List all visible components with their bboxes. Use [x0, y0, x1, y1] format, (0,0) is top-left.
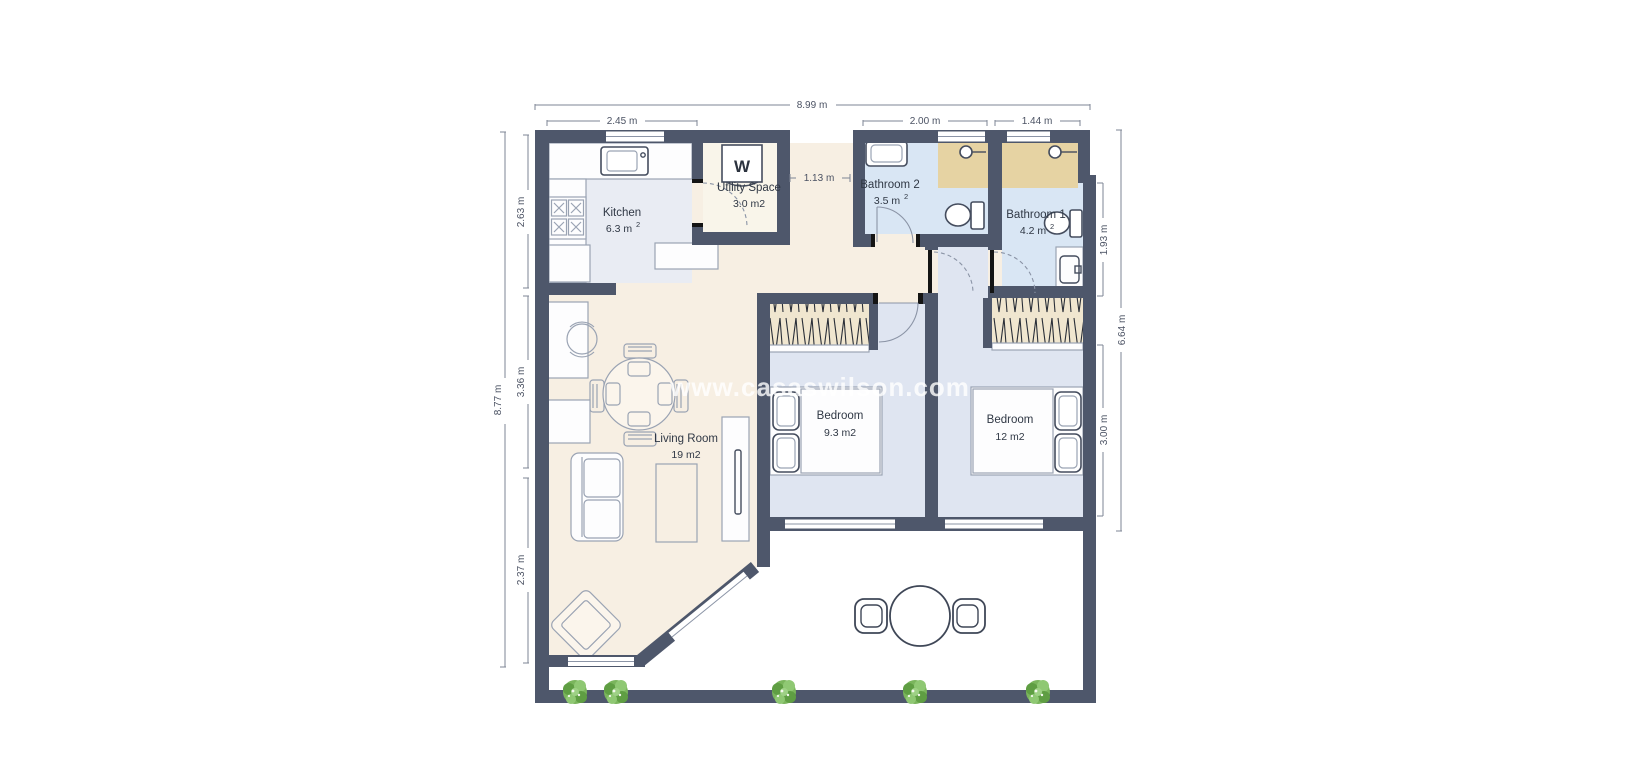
window-bedroom2 [945, 520, 1043, 529]
svg-text:2: 2 [1050, 222, 1054, 231]
window-bathroom2 [938, 132, 985, 142]
dimension-kitchen-width: 2.45 m [547, 116, 697, 127]
svg-text:2.37 m: 2.37 m [516, 555, 527, 586]
svg-text:1.13 m: 1.13 m [804, 173, 835, 184]
floor-plan: W [0, 0, 1638, 773]
washer-letter: W [734, 157, 751, 176]
svg-text:2.63 m: 2.63 m [516, 197, 527, 228]
dimension-living-bottom-height: 2.37 m [516, 478, 529, 663]
dimension-bathroom1-height: 1.93 m [1097, 183, 1110, 296]
svg-text:Kitchen: Kitchen [603, 207, 641, 219]
svg-text:9.3 m2: 9.3 m2 [824, 427, 856, 439]
sofa-icon [571, 453, 623, 541]
svg-text:3.36 m: 3.36 m [516, 367, 527, 398]
svg-text:Bathroom 1: Bathroom 1 [1006, 209, 1065, 221]
svg-text:1.93 m: 1.93 m [1099, 225, 1110, 256]
dimension-bathroom2-width: 2.00 m [863, 116, 987, 127]
window-bedroom1 [785, 520, 895, 529]
dimension-total-height-left: 8.77 m [493, 132, 506, 667]
bed-icon-bedroom2 [971, 387, 1083, 475]
round-table-icon [890, 586, 950, 646]
dimension-total-width: 8.99 m [535, 100, 1090, 111]
watermark: www.casaswilson.com [669, 372, 970, 402]
dimension-living-mid-height: 3.36 m [516, 296, 529, 468]
bathroom1-vanity-icon [1056, 247, 1083, 292]
dimension-bathroom1-width: 1.44 m [995, 116, 1080, 127]
terrace-chair-icon [855, 599, 887, 633]
svg-text:2.00 m: 2.00 m [910, 116, 941, 127]
wardrobe-bedroom1 [767, 300, 869, 352]
dimension-kitchen-height: 2.63 m [516, 135, 529, 288]
bathroom2-toilet-icon [946, 202, 985, 229]
window-living-bottom [568, 657, 634, 666]
svg-text:3.00 m: 3.00 m [1099, 415, 1110, 446]
svg-text:Bedroom: Bedroom [987, 414, 1034, 426]
svg-text:6.64 m: 6.64 m [1117, 315, 1128, 346]
svg-text:12 m2: 12 m2 [995, 431, 1024, 443]
svg-text:4.2 m: 4.2 m [1020, 225, 1047, 237]
shower-area-bathroom1 [1002, 143, 1078, 188]
svg-text:2.45 m: 2.45 m [607, 116, 638, 127]
svg-text:19 m2: 19 m2 [671, 449, 700, 461]
bathroom2-sink-icon [866, 141, 907, 166]
svg-text:Utility Space: Utility Space [717, 182, 781, 194]
dimension-right-total-height: 6.64 m [1116, 130, 1128, 531]
svg-text:8.77 m: 8.77 m [493, 385, 504, 416]
terrace-chair-icon [953, 599, 985, 633]
svg-text:3.0 m2: 3.0 m2 [733, 198, 765, 210]
fridge-icon [549, 245, 590, 282]
washing-machine-icon: W [722, 145, 762, 186]
svg-text:1.44 m: 1.44 m [1022, 116, 1053, 127]
window-bathroom1 [1007, 132, 1050, 142]
floor-plan-page: W [0, 0, 1638, 773]
svg-text:2: 2 [636, 220, 640, 229]
dimension-bedroom-height: 3.00 m [1097, 345, 1110, 516]
tv-console-icon [722, 417, 749, 541]
svg-text:Living Room: Living Room [654, 433, 718, 445]
wardrobe-bedroom2 [992, 298, 1083, 350]
window-kitchen [606, 132, 664, 142]
stove-icon [549, 197, 586, 239]
svg-text:8.99 m: 8.99 m [797, 100, 828, 111]
sideboard-icon [548, 400, 590, 443]
svg-text:2: 2 [904, 192, 908, 201]
kitchen-island-icon [655, 243, 718, 269]
svg-text:Bathroom 2: Bathroom 2 [860, 179, 919, 191]
svg-text:6.3 m: 6.3 m [606, 223, 633, 235]
svg-text:Bedroom: Bedroom [817, 410, 864, 422]
svg-text:3.5 m: 3.5 m [874, 195, 901, 207]
